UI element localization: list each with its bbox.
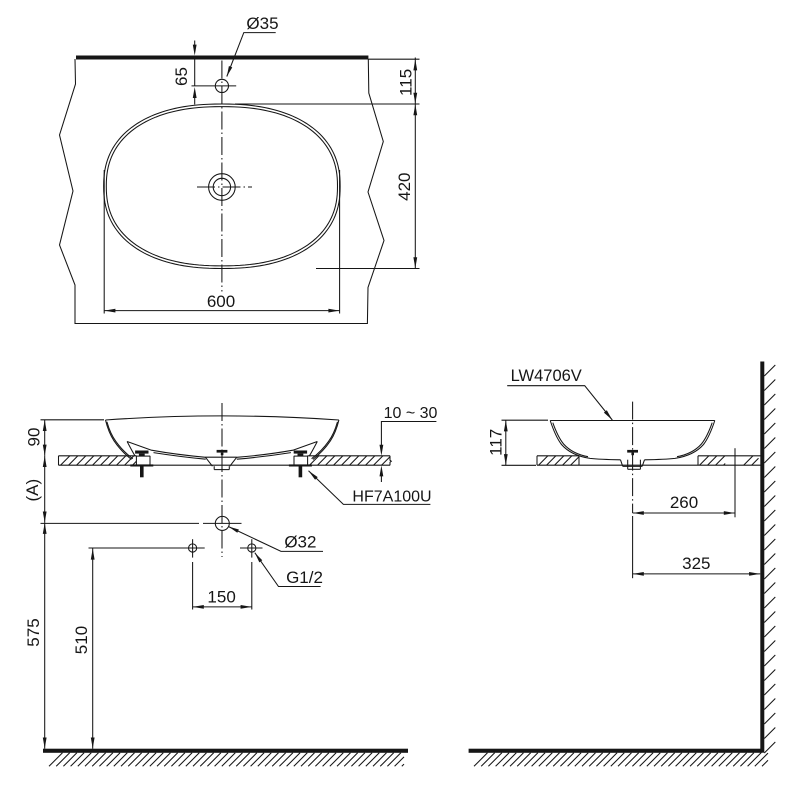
svg-text:10 ~ 30: 10 ~ 30 <box>384 405 438 422</box>
svg-text:115: 115 <box>396 69 415 96</box>
svg-text:G1/2: G1/2 <box>286 568 323 587</box>
svg-text:65: 65 <box>172 67 191 86</box>
svg-text:LW4706V: LW4706V <box>511 367 582 385</box>
svg-text:575: 575 <box>24 618 43 646</box>
svg-text:510: 510 <box>72 626 91 654</box>
svg-text:90: 90 <box>25 428 44 447</box>
svg-text:117: 117 <box>487 429 506 456</box>
svg-text:(A): (A) <box>23 479 42 502</box>
svg-text:150: 150 <box>207 588 235 607</box>
svg-text:420: 420 <box>395 173 414 201</box>
svg-text:HF7A100U: HF7A100U <box>352 488 431 505</box>
svg-text:Ø32: Ø32 <box>284 533 316 552</box>
svg-text:260: 260 <box>670 493 698 512</box>
svg-text:325: 325 <box>682 554 710 573</box>
svg-text:Ø35: Ø35 <box>246 14 278 33</box>
svg-text:600: 600 <box>207 292 235 311</box>
